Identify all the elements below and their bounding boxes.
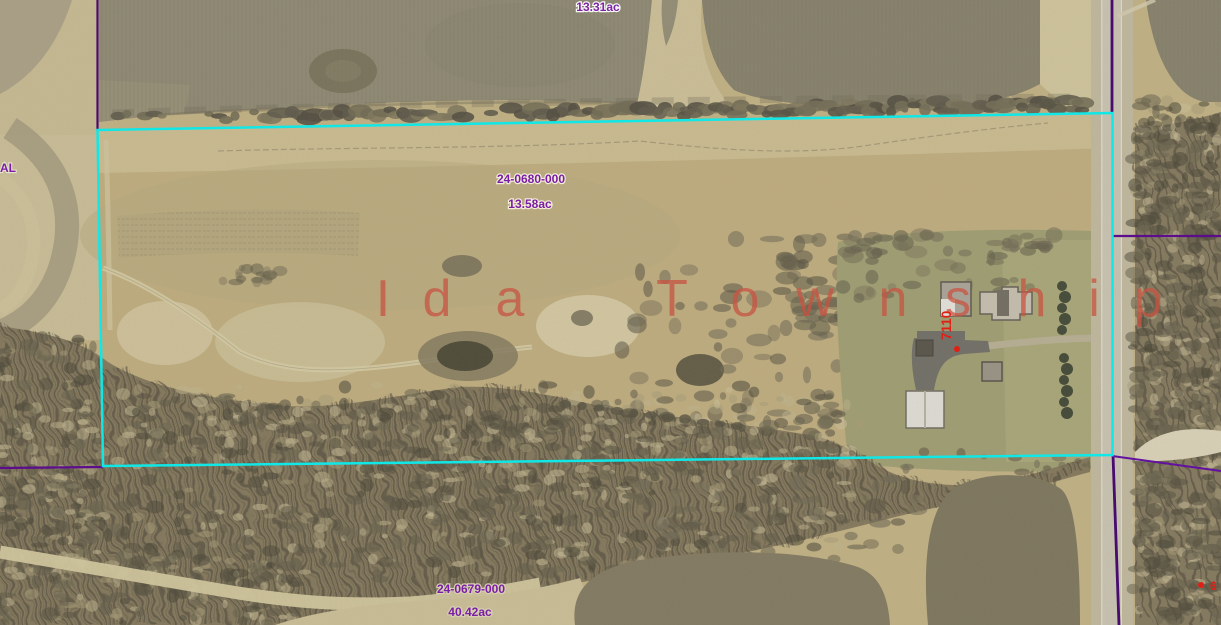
svg-text:a: a [496,270,525,328]
svg-text:AL: AL [0,161,16,175]
svg-text:p: p [1134,270,1163,328]
svg-text:40.42ac: 40.42ac [448,605,492,619]
svg-text:I: I [376,270,390,328]
svg-text:6: 6 [1210,579,1217,593]
svg-text:13.58ac: 13.58ac [508,197,552,211]
svg-text:24-0680-000: 24-0680-000 [497,172,565,186]
svg-text:d: d [423,270,452,328]
svg-text:h: h [1018,270,1047,328]
svg-text:w: w [795,270,834,328]
svg-text:o: o [731,270,760,328]
svg-text:T: T [656,270,688,328]
svg-text:7110: 7110 [939,311,954,340]
svg-text:n: n [879,270,908,328]
svg-text:24-0679-000: 24-0679-000 [437,582,505,596]
svg-text:i: i [1088,270,1100,328]
svg-text:13.31ac: 13.31ac [576,0,620,14]
